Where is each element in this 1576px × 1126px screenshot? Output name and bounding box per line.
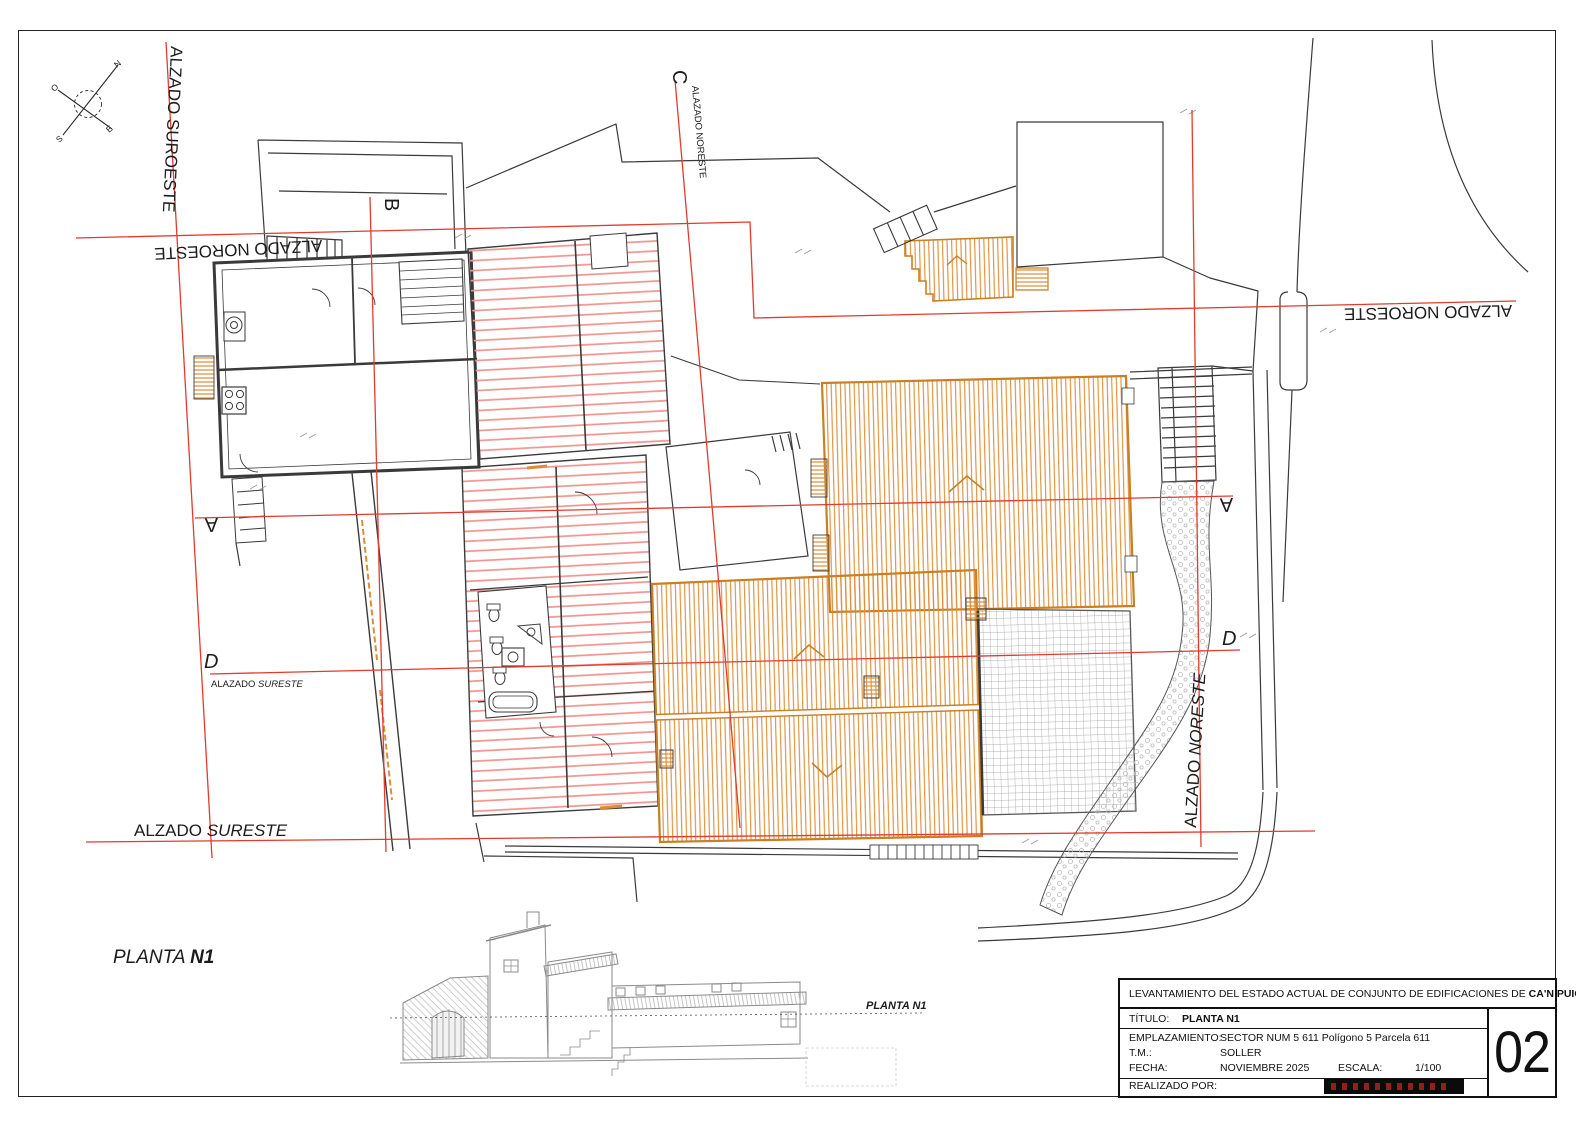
label-section-d-right: D [1222,628,1236,650]
label-section-d-left: D [204,651,218,673]
tm-label: T.M.: [1129,1046,1152,1061]
label-section-b: B [380,198,402,211]
emplazamiento-label: EMPLAZAMIENTO: [1129,1031,1222,1046]
roof-orange-2 [652,570,982,859]
courtyard-middle [666,432,808,570]
titulo-label: TÍTULO: [1129,1009,1169,1029]
compass-rose: N S E O [49,58,123,145]
title-block: LEVANTAMIENTO DEL ESTADO ACTUAL DE CONJU… [1118,978,1557,1098]
fecha-value: NOVIEMBRE 2025 [1220,1061,1309,1076]
escala-label: ESCALA: [1338,1061,1382,1076]
elevation-marker-label: PLANTA N1 [866,1000,927,1012]
plan-title: PLANTA N1 [113,947,214,968]
label-alzado-suroeste: ALZADO SUROESTE [159,46,186,213]
sheet-number-cell: 02 [1487,1009,1555,1096]
roof-red-upper [468,233,820,459]
elevation-sketch: PLANTA N1 [390,912,927,1086]
roof-orange-stepped [874,205,1048,301]
tm-value: SOLLER [1220,1046,1261,1061]
redacted-logo [1325,1080,1463,1093]
label-section-a-right: A [1219,493,1234,515]
label-alzado-sureste: ALZADO SURESTE [134,821,288,840]
header-text: LEVANTAMIENTO DEL ESTADO ACTUAL DE CONJU… [1129,988,1529,1000]
sheet-number: 02 [1494,1023,1550,1081]
label-section-c: C [668,70,690,84]
info-rows: EMPLAZAMIENTO: SECTOR NUM 5 611 Polígono… [1120,1029,1489,1079]
label-alzado-noroeste-right: ALZADO NOROESTE [1344,301,1513,324]
header-project-name: CA'N PUIG [1529,988,1576,1000]
title-block-header: LEVANTAMIENTO DEL ESTADO ACTUAL DE CONJU… [1120,980,1555,1009]
label-section-a-left: A [204,513,219,535]
plan-drawing-svg: N S E O ALZADO SUROESTE ALZADO NOROESTE … [0,0,1576,1126]
fecha-label: FECHA: [1129,1061,1168,1076]
realizado-row: REALIZADO POR: [1120,1079,1489,1096]
compass-n: N [112,58,123,70]
compass-o: O [49,81,61,93]
compass-e: E [104,123,115,135]
realizado-label: REALIZADO POR: [1129,1079,1217,1094]
stair-right [1158,366,1216,482]
titulo-row: TÍTULO: PLANTA N1 [1120,1009,1489,1029]
exterior-stair-hatch [194,356,214,399]
label-c-subtitle: ALAZADO NORESTE [689,85,708,179]
label-d-subtitle: ALAZADO SURESTE [211,679,304,690]
drawing-sheet: N S E O ALZADO SUROESTE ALZADO NOROESTE … [0,0,1576,1126]
titulo-value: PLANTA N1 [1182,1009,1240,1029]
building-upper-left [194,252,479,543]
stair-left [232,477,266,543]
escala-value: 1/100 [1415,1061,1441,1076]
emplazamiento-value: SECTOR NUM 5 611 Polígono 5 Parcela 611 [1220,1031,1430,1046]
